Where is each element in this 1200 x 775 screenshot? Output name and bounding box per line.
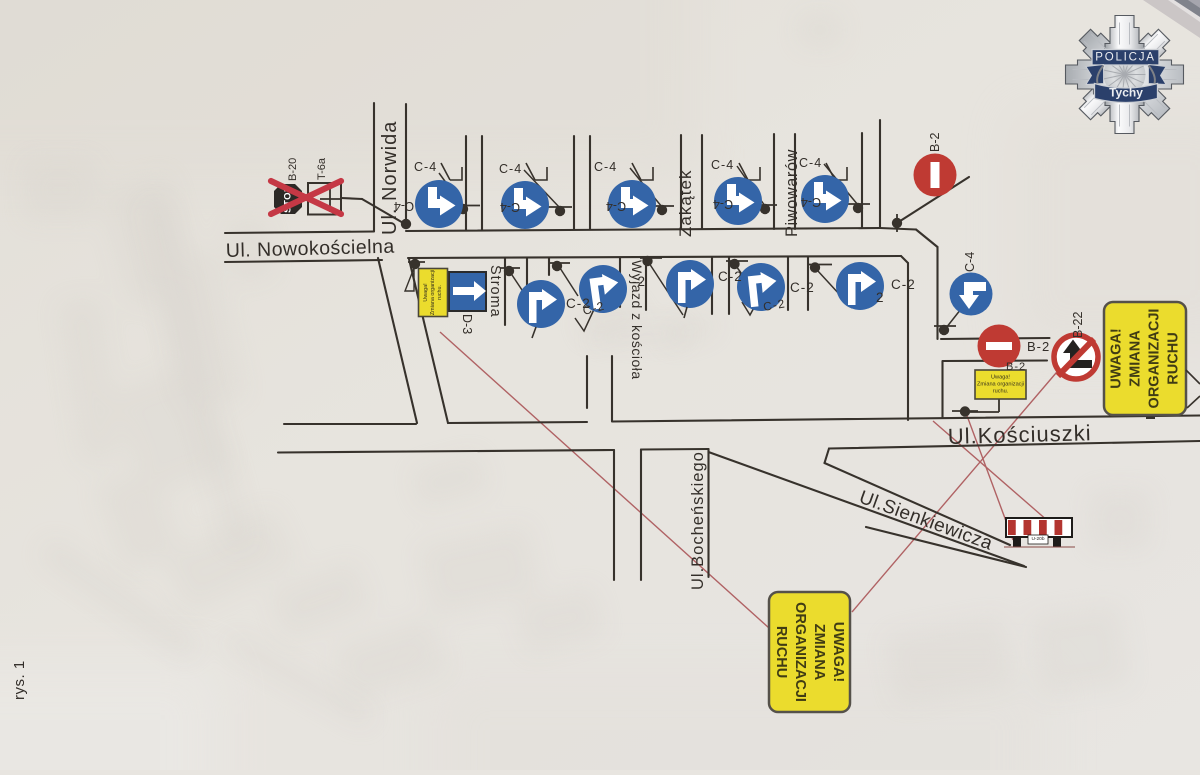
svg-text:ZMIANA: ZMIANA — [811, 624, 827, 681]
svg-text:Zmiana organizacji: Zmiana organizacji — [977, 382, 1024, 388]
svg-text:C-4: C-4 — [414, 160, 437, 174]
svg-text:B-2: B-2 — [1006, 361, 1026, 373]
svg-text:ORGANIZACJI: ORGANIZACJI — [1147, 309, 1163, 409]
svg-text:U-20b: U-20b — [1031, 536, 1044, 542]
svg-text:Zakątek: Zakątek — [676, 170, 695, 237]
svg-text:C-2: C-2 — [718, 269, 743, 284]
svg-text:C-4: C-4 — [711, 158, 734, 172]
svg-text:C-4: C-4 — [606, 199, 626, 213]
svg-text:C-4: C-4 — [801, 195, 821, 209]
svg-text:UWAGA!: UWAGA! — [830, 622, 846, 682]
svg-text:B-22: B-22 — [1071, 312, 1085, 338]
svg-text:Zmiana organizacji: Zmiana organizacji — [430, 270, 436, 315]
svg-text:RUCHU: RUCHU — [1166, 332, 1182, 384]
svg-text:RUCHU: RUCHU — [773, 626, 789, 678]
svg-text:D-3: D-3 — [460, 314, 474, 334]
svg-text:ruchu.: ruchu. — [993, 389, 1009, 395]
svg-text:B-20: B-20 — [287, 158, 299, 181]
svg-text:UWAGA!: UWAGA! — [1109, 328, 1125, 388]
svg-text:C-2: C-2 — [790, 280, 815, 295]
svg-text:B-2: B-2 — [928, 133, 942, 153]
svg-text:Ul. Nowokościelna: Ul. Nowokościelna — [226, 236, 395, 262]
svg-text:Ul.Bocheńskiego: Ul.Bocheńskiego — [689, 451, 707, 590]
svg-text:C-4: C-4 — [799, 156, 822, 170]
svg-text:C-4: C-4 — [394, 199, 414, 213]
svg-text:ORGANIZACJI: ORGANIZACJI — [792, 602, 808, 702]
svg-text:Tychy: Tychy — [1109, 86, 1143, 100]
svg-text:Uwaga!: Uwaga! — [991, 374, 1010, 380]
svg-text:POLICJA: POLICJA — [1095, 52, 1156, 64]
svg-text:C-2: C-2 — [891, 277, 916, 292]
svg-text:Ul. Norwida: Ul. Norwida — [379, 121, 401, 235]
svg-text:C-4: C-4 — [500, 200, 520, 214]
svg-text:2: 2 — [876, 290, 885, 305]
svg-text:Uwaga!: Uwaga! — [423, 283, 429, 302]
svg-text:T-6a: T-6a — [316, 157, 328, 180]
svg-text:C-4: C-4 — [963, 252, 977, 272]
svg-text:ruchu.: ruchu. — [437, 285, 443, 300]
svg-text:B-2: B-2 — [1027, 339, 1050, 354]
svg-text:-2: -2 — [632, 274, 646, 289]
svg-text:Ul.Kościuszki: Ul.Kościuszki — [947, 420, 1091, 449]
svg-text:ZMIANA: ZMIANA — [1128, 330, 1144, 387]
svg-text:rys. 1: rys. 1 — [11, 660, 28, 700]
svg-text:Stroma: Stroma — [487, 265, 503, 318]
svg-text:C-4: C-4 — [594, 160, 617, 174]
svg-text:C-4: C-4 — [713, 197, 733, 211]
svg-text:C-4: C-4 — [499, 162, 522, 176]
